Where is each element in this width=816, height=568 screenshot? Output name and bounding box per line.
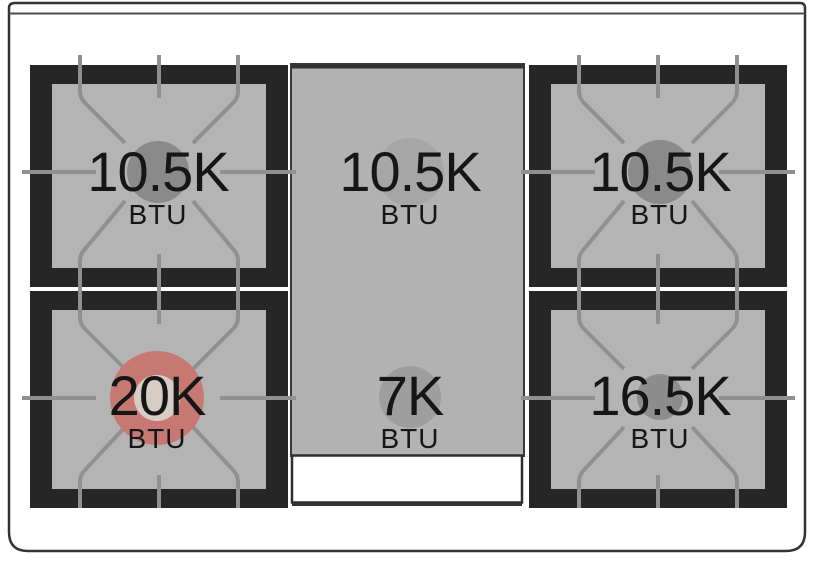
burner-cap-front-center-icon [379, 366, 441, 428]
burner-cap-front-right-icon [637, 374, 683, 420]
burner-cap-rear-left-icon [127, 141, 189, 203]
cooktop-graphic [0, 0, 816, 568]
griddle-tray [292, 456, 522, 503]
range-cooktop-diagram: 10.5K BTU 10.5K BTU 10.5K BTU 20K BTU 7K… [0, 0, 816, 568]
burner-cap-rear-right-icon [628, 140, 692, 204]
burner-cap-front-left-inner-icon [134, 375, 180, 421]
burner-cap-rear-center-icon [376, 138, 444, 206]
griddle-plate [291, 64, 524, 505]
